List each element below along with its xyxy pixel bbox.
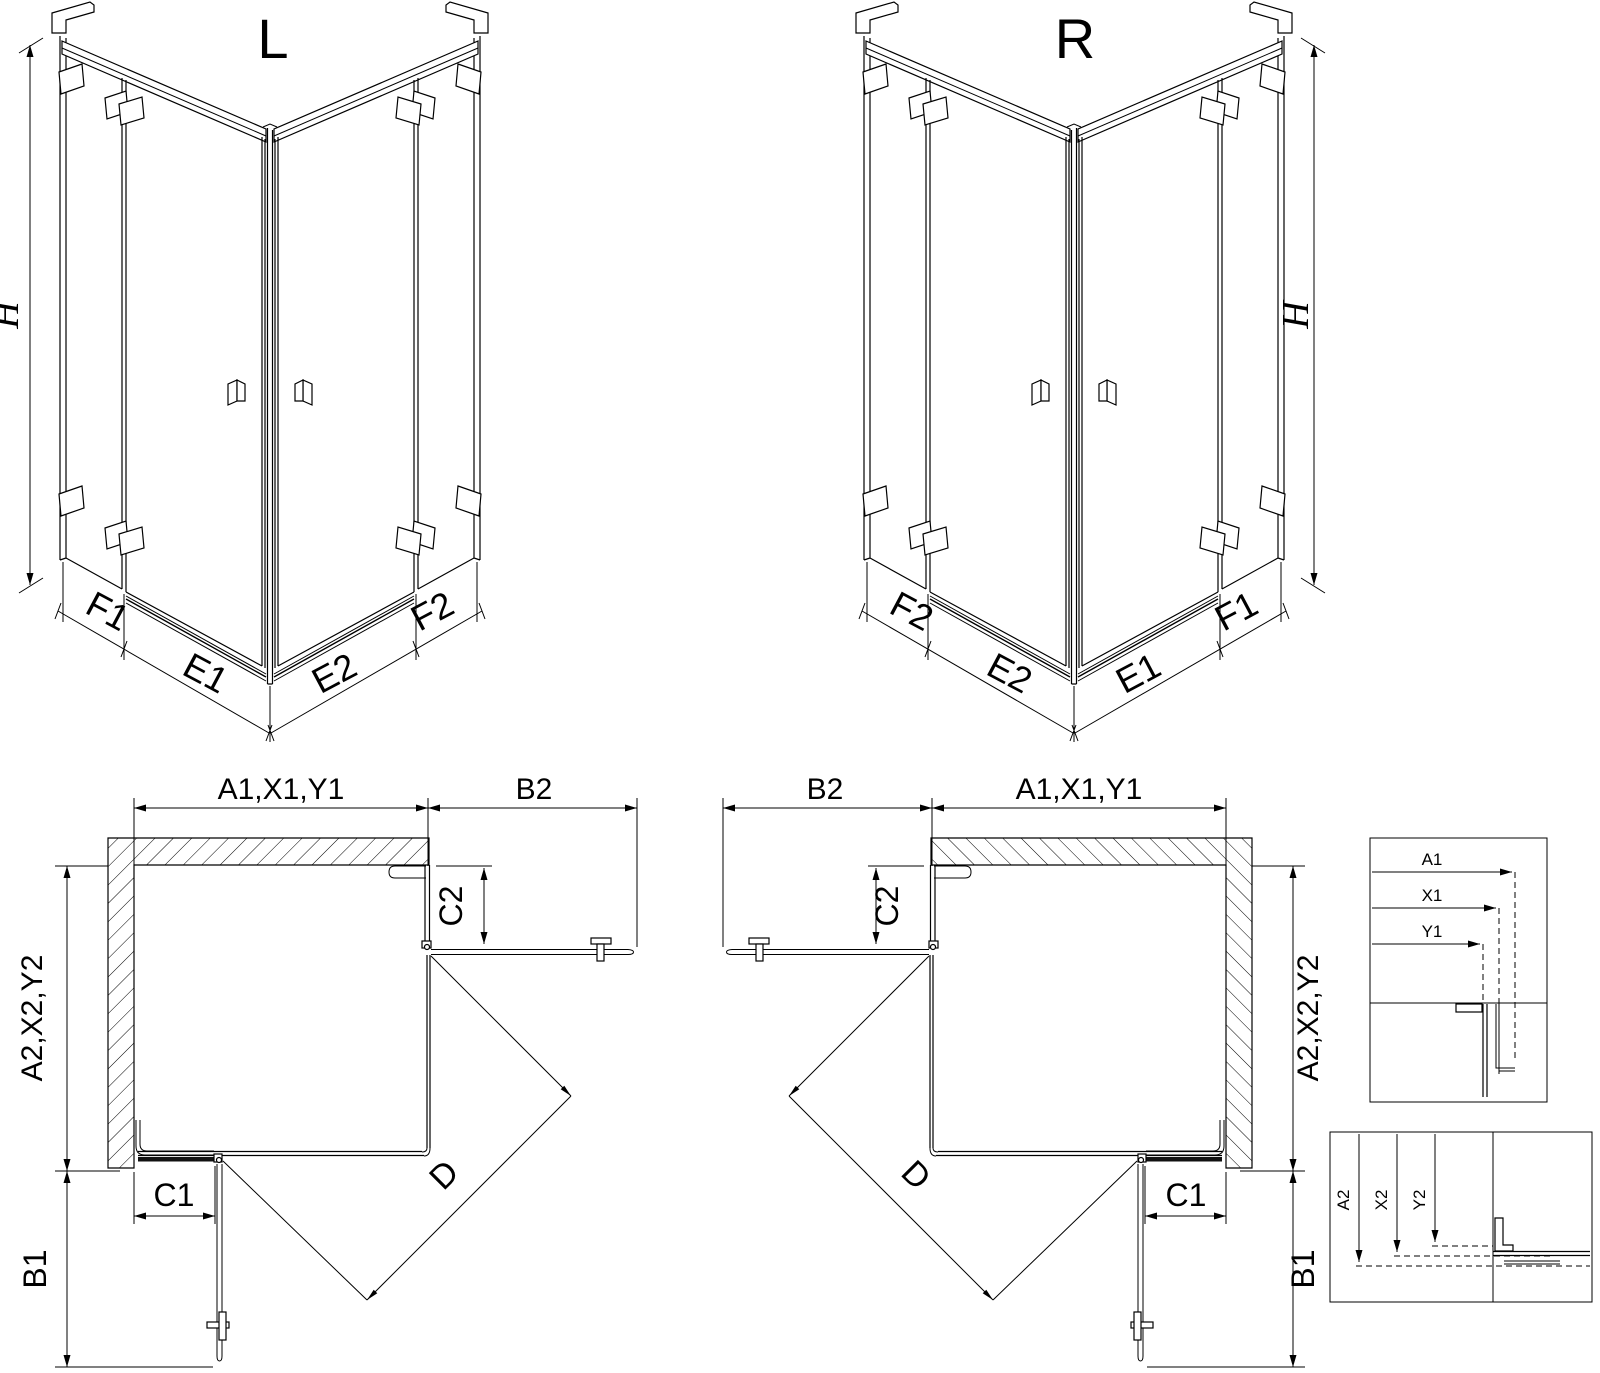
detail-a1-label: A1 [1422,850,1443,869]
iso-right-dim-h: H [1275,299,1317,330]
plan-left-dim-c1: C1 [154,1177,195,1213]
shower-enclosure-technical-drawing: L H F1 E1 E2 F2 R H F2 E2 E1 F1 A1,X1,Y1… [0,0,1600,1373]
iso-right-title: R [1055,7,1095,70]
plan-right-dim-b2: B2 [807,773,844,806]
plan-right-dim-c1: C1 [1166,1177,1207,1213]
detail-x2-label: X2 [1372,1190,1391,1211]
background [0,0,1600,1373]
plan-right-dim-c2: C2 [869,886,905,927]
plan-left-dim-b2: B2 [516,773,553,806]
detail-y1-label: Y1 [1422,922,1443,941]
plan-left-dim-b1: B1 [17,1249,53,1288]
detail-y2-label: Y2 [1410,1190,1429,1211]
iso-left-dim-h: H [0,299,27,330]
plan-left-dim-c2: C2 [433,886,469,927]
plan-right-dim-b1: B1 [1285,1249,1321,1288]
plan-left-dim-a2: A2,X2,Y2 [16,955,49,1082]
iso-left-title: L [257,7,288,70]
detail-x1-label: X1 [1422,886,1443,905]
plan-right-dim-a2: A2,X2,Y2 [1292,955,1325,1082]
drawing-sheet: L H F1 E1 E2 F2 R H F2 E2 E1 F1 A1,X1,Y1… [0,0,1600,1373]
detail-a2-label: A2 [1334,1190,1353,1211]
plan-left-dim-a1: A1,X1,Y1 [218,773,345,806]
plan-right-dim-a1: A1,X1,Y1 [1016,773,1143,806]
